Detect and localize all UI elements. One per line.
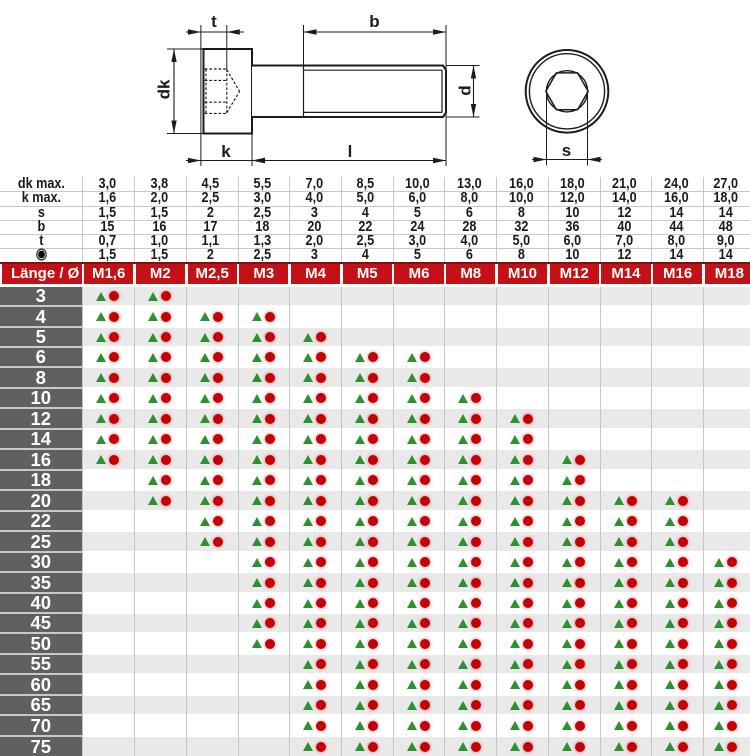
svg-text:k: k — [221, 142, 231, 161]
svg-text:t: t — [211, 12, 217, 31]
svg-text:s: s — [562, 141, 571, 160]
svg-text:b: b — [369, 12, 379, 31]
svg-text:dk: dk — [154, 79, 173, 99]
svg-text:l: l — [348, 142, 353, 161]
svg-text:d: d — [455, 85, 474, 95]
